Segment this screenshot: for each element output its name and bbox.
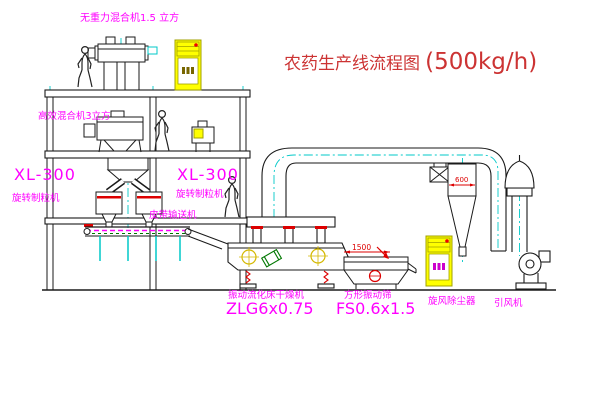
gravity-mixer bbox=[88, 37, 157, 90]
label-dryer-model: ZLG6x0.75 bbox=[226, 299, 314, 318]
label-granulator-right-model: XL-300 bbox=[177, 165, 239, 184]
label-top-mixer: 无重力混合机1.5 立方 bbox=[80, 11, 179, 24]
dim-cyclone-diameter: 600 bbox=[455, 176, 468, 184]
page-title-capacity: (500kg/h) bbox=[425, 49, 537, 75]
label-mid-mixer: 高效混合机3立方 bbox=[38, 110, 111, 122]
exhaust-stack bbox=[505, 155, 534, 252]
page-title: 农药生产线流程图 (500kg/h) bbox=[284, 49, 537, 75]
auxiliary-machine bbox=[192, 121, 214, 152]
label-sieve-model: FS0.6x1.5 bbox=[336, 299, 415, 318]
label-granulator-left-name: 旋转制粒机 bbox=[12, 192, 60, 204]
control-cabinet-right bbox=[426, 236, 452, 286]
induced-draft-fan bbox=[516, 251, 550, 289]
control-cabinet-top bbox=[175, 40, 201, 90]
label-granulator-left-model: XL-300 bbox=[14, 165, 76, 184]
diagram-svg: 农药生产线流程图 (500kg/h) 无重力混合机1.5 立方 高效混合机3立方… bbox=[0, 0, 600, 403]
page-title-cn: 农药生产线流程图 bbox=[284, 54, 420, 74]
fluid-bed-dryer bbox=[228, 217, 354, 288]
dim-sieve-arrow-right bbox=[384, 251, 390, 254]
label-granulator-right-name: 旋转制粒机 bbox=[176, 188, 224, 200]
dim-sieve-length: 1500 bbox=[352, 243, 371, 252]
label-cyclone: 旋风除尘器 bbox=[428, 295, 476, 307]
label-fan: 引风机 bbox=[494, 297, 523, 309]
vibrating-sieve bbox=[344, 247, 416, 289]
person-figure-mid bbox=[155, 111, 169, 151]
production-line-diagram: 农药生产线流程图 (500kg/h) 无重力混合机1.5 立方 高效混合机3立方… bbox=[0, 0, 600, 403]
label-belt-conveyor: 皮带输送机 bbox=[149, 209, 197, 221]
